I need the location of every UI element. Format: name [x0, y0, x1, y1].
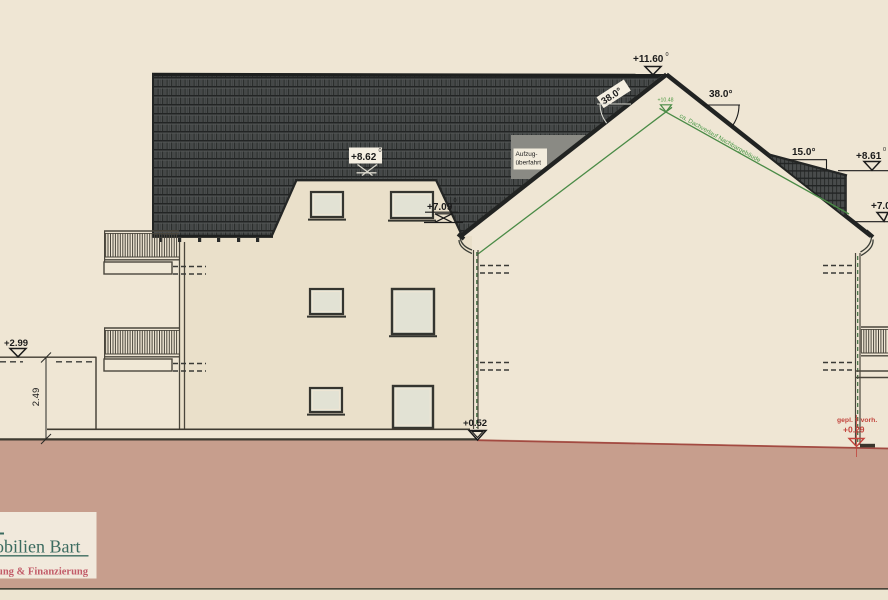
svg-text:+7.0: +7.0 [871, 201, 888, 212]
svg-text:+11.60: +11.60 [633, 54, 664, 65]
svg-text:Aufzug-: Aufzug- [516, 151, 538, 158]
svg-text:0: 0 [666, 52, 669, 58]
svg-text:+2.99: +2.99 [4, 338, 28, 349]
svg-text:ung & Finanzierung: ung & Finanzierung [0, 567, 89, 578]
svg-text:0: 0 [883, 147, 886, 153]
svg-text:2.49: 2.49 [31, 388, 42, 407]
svg-text:+7.09: +7.09 [427, 202, 453, 213]
svg-text:+10.48: +10.48 [658, 98, 674, 104]
svg-text:+0.29: +0.29 [843, 425, 865, 435]
svg-text:gepl. = vorh.: gepl. = vorh. [837, 417, 877, 424]
svg-text:0: 0 [454, 198, 457, 204]
svg-text:0: 0 [379, 148, 382, 154]
svg-text:38.0°: 38.0° [709, 89, 732, 100]
svg-text:15.0°: 15.0° [792, 147, 815, 158]
svg-text:+0.52: +0.52 [463, 418, 487, 429]
svg-text:überfahrt: überfahrt [516, 160, 542, 167]
svg-text:+8.62: +8.62 [351, 152, 377, 163]
svg-text:+8.61: +8.61 [856, 151, 882, 162]
svg-text:obilien Bart: obilien Bart [0, 537, 80, 557]
